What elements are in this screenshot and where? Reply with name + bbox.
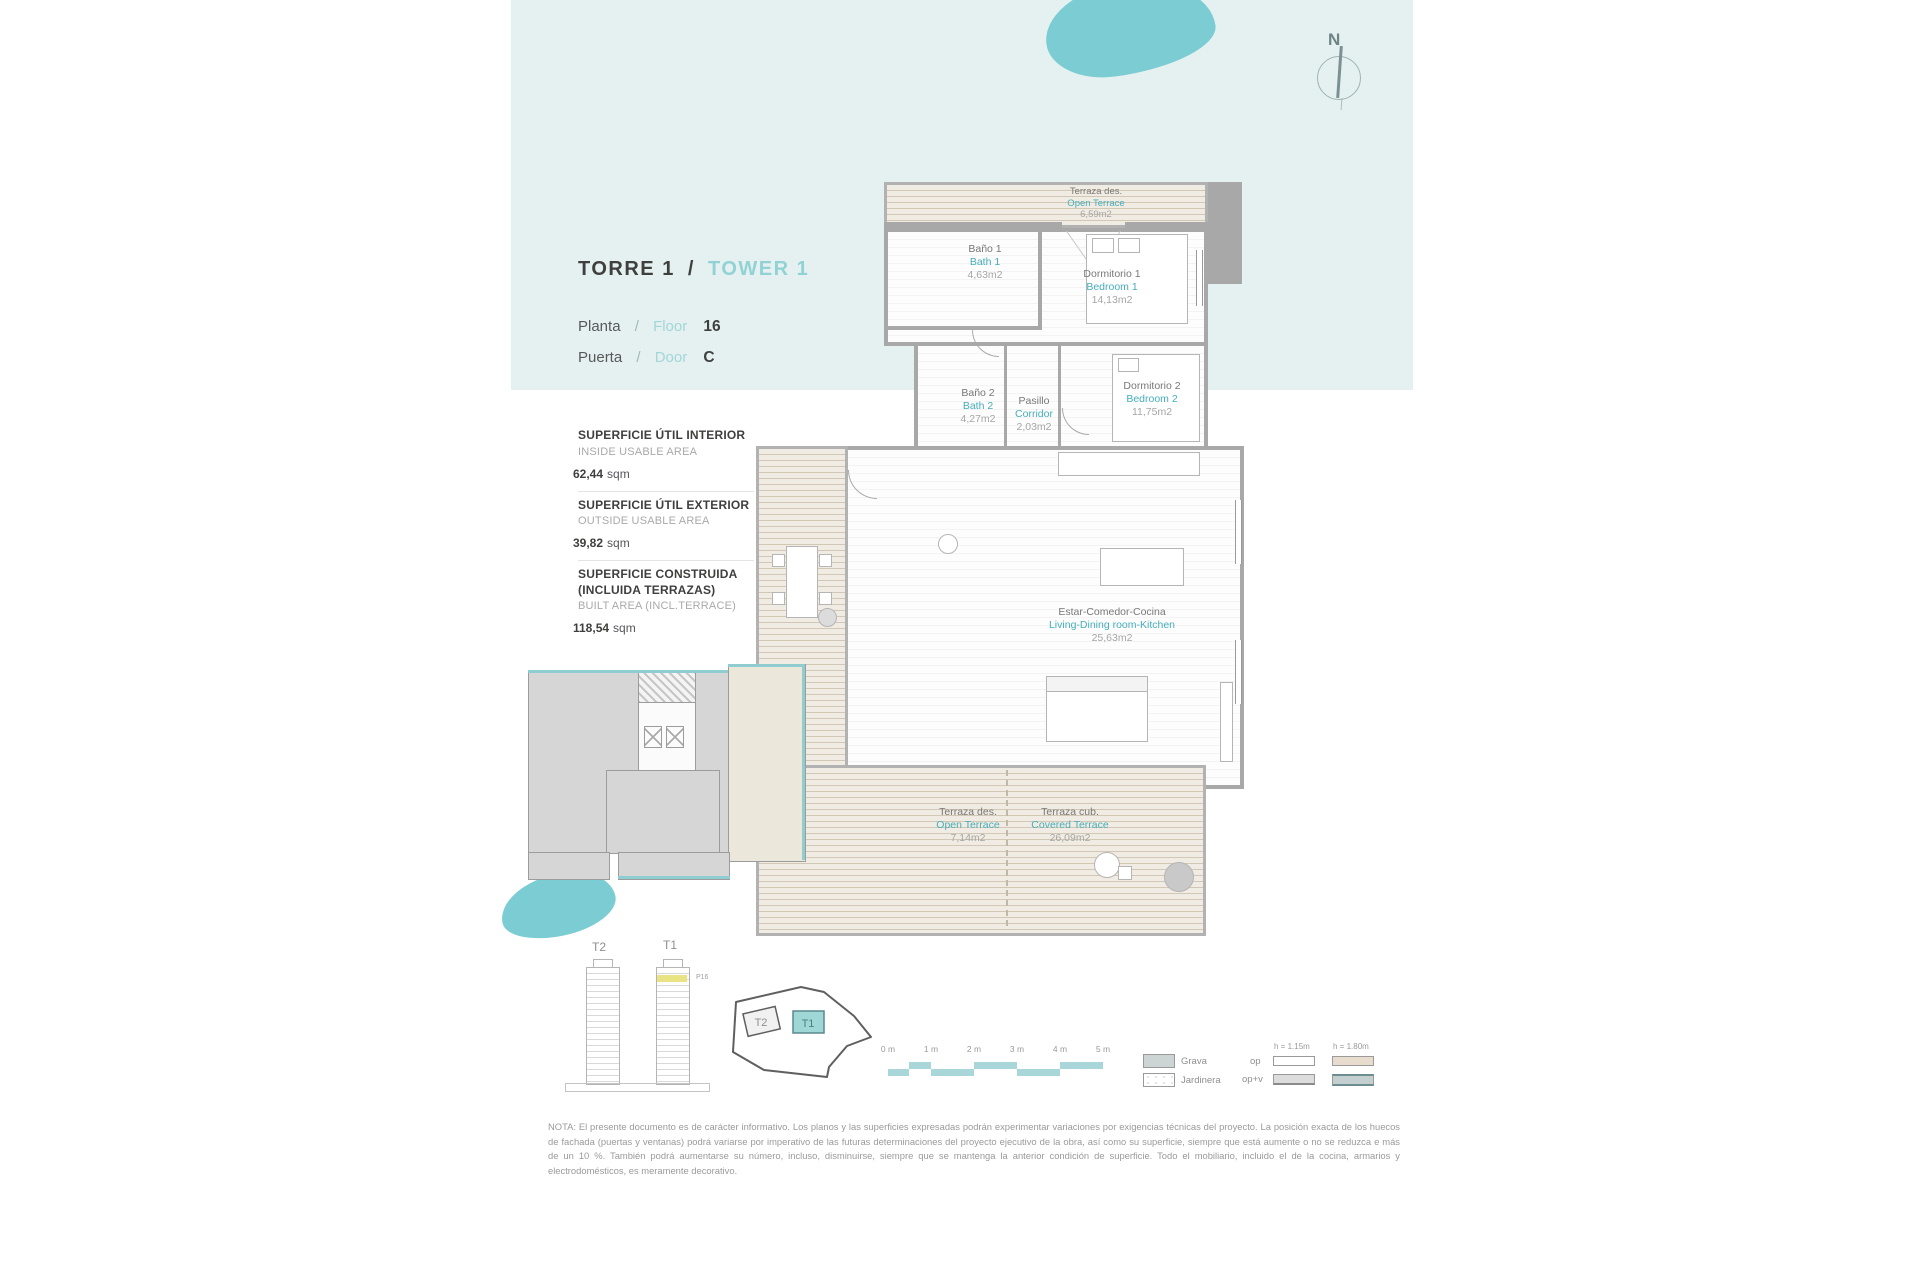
- room-area: 14,13m2: [1092, 294, 1133, 307]
- furniture-pillow: [1092, 238, 1114, 253]
- room-name-es: Baño 2: [961, 387, 994, 400]
- area-value: 62,44sqm: [573, 467, 754, 481]
- furniture-pillow: [1118, 238, 1140, 253]
- tower-name-es: TORRE 1: [578, 258, 675, 280]
- surface-areas: SUPERFICIE ÚTIL INTERIOR INSIDE USABLE A…: [578, 422, 754, 645]
- room-label-bedroom2: Dormitorio 2 Bedroom 2 11,75m2: [1123, 380, 1180, 418]
- area-title-en: OUTSIDE USABLE AREA: [578, 515, 754, 527]
- op-swatch-180: [1332, 1056, 1374, 1066]
- door-value: C: [703, 349, 714, 366]
- wall-block-top-right: [1208, 182, 1242, 284]
- area-value: 39,82sqm: [573, 536, 754, 550]
- area-number: 39,82: [573, 536, 603, 550]
- op-swatch-115: [1273, 1056, 1315, 1066]
- room-name-en: Bedroom 2: [1126, 393, 1177, 406]
- keyplan-core-hatch: [638, 672, 696, 704]
- keyplan-highlight: [728, 664, 804, 667]
- room-label-bath2: Baño 2 Bath 2 4,27m2: [960, 387, 995, 425]
- furniture-terrace-table: [1094, 852, 1120, 878]
- living-band: [844, 446, 1244, 789]
- room-name-es: Baño 1: [968, 243, 1001, 256]
- scale-tick-label: 5 m: [1096, 1044, 1110, 1054]
- room-label-bath1: Baño 1 Bath 1 4,63m2: [967, 243, 1002, 281]
- window: [1235, 500, 1242, 564]
- keyplan-elevator: [644, 726, 662, 748]
- room-name-es: Terraza des.: [1070, 186, 1122, 198]
- area-unit: sqm: [613, 621, 636, 635]
- site-t1-label: T1: [802, 1018, 815, 1030]
- room-area: 11,75m2: [1132, 406, 1172, 419]
- keyplan-highlight: [618, 876, 730, 879]
- jardinera-label: Jardinera: [1181, 1075, 1221, 1086]
- window: [1196, 250, 1203, 306]
- room-name-es: Terraza des.: [939, 806, 997, 819]
- disclaimer-note: NOTA: El presente documento es de caráct…: [548, 1120, 1400, 1178]
- area-built: SUPERFICIE CONSTRUIDA (INCLUIDA TERRAZAS…: [578, 561, 754, 645]
- furniture-chair: [772, 592, 785, 605]
- room-area: 7,14m2: [950, 832, 985, 845]
- tower-base-line: [565, 1083, 710, 1092]
- floor-value: 16: [703, 318, 720, 335]
- room-name-es: Estar-Comedor-Cocina: [1058, 606, 1165, 619]
- room-area: 4,27m2: [960, 413, 995, 426]
- furniture-chair: [772, 554, 785, 567]
- door-separator: /: [636, 349, 640, 366]
- keyplan-unit-c: [728, 664, 806, 862]
- site-plan: T2 T1: [722, 978, 882, 1090]
- scale-segment: [909, 1062, 931, 1069]
- highlighted-floor-band: [657, 975, 687, 982]
- room-label-bedroom1: Dormitorio 1 Bedroom 1 14,13m2: [1083, 268, 1140, 306]
- room-name-es: Terraza cub.: [1041, 806, 1099, 819]
- room-area: 4,63m2: [967, 269, 1002, 282]
- furniture-stool: [818, 608, 837, 627]
- furniture-pillow: [1118, 358, 1139, 372]
- area-unit: sqm: [607, 467, 630, 481]
- plant-icon: [938, 534, 958, 554]
- keyplan-elevator: [666, 726, 684, 748]
- wall-under-bath1: [884, 326, 1042, 330]
- wall-corridor-bedroom2: [1058, 342, 1061, 446]
- area-number: 118,54: [573, 621, 609, 635]
- floor-tag: P16: [696, 974, 708, 981]
- legend-height2-label: h = 1.80m: [1333, 1042, 1369, 1051]
- scale-tick-label: 1 m: [924, 1044, 938, 1054]
- tower-name-en: TOWER 1: [708, 258, 809, 280]
- terrace-bottom: [756, 765, 1206, 936]
- op-label: op: [1250, 1056, 1261, 1067]
- tower-t2: [586, 967, 620, 1085]
- room-name-es: Dormitorio 1: [1083, 268, 1140, 281]
- room-name-es: Pasillo: [1019, 395, 1050, 408]
- furniture-planter: [1164, 862, 1194, 892]
- scale-tick-label: 3 m: [1010, 1044, 1024, 1054]
- wall-bath1-bedroom1: [1038, 228, 1042, 328]
- room-label-living: Estar-Comedor-Cocina Living-Dining room-…: [1049, 606, 1175, 644]
- scale-tick-label: 2 m: [967, 1044, 981, 1054]
- keyplan-bottom-unit: [606, 770, 720, 854]
- scale-segment: [931, 1069, 974, 1076]
- area-outside: SUPERFICIE ÚTIL EXTERIOR OUTSIDE USABLE …: [578, 492, 754, 562]
- scale-tick-label: 0 m: [881, 1044, 895, 1054]
- keyplan-highlight: [802, 664, 805, 860]
- tower-t1: [656, 967, 690, 1085]
- area-title-es: SUPERFICIE ÚTIL INTERIOR: [578, 428, 754, 444]
- room-area: 25,63m2: [1092, 632, 1133, 645]
- area-title-en: BUILT AREA (INCL.TERRACE): [578, 600, 754, 612]
- furniture-kitchen-island: [1100, 548, 1184, 586]
- grava-swatch: [1143, 1054, 1175, 1068]
- legend-height1-label: h = 1.15m: [1274, 1042, 1310, 1051]
- room-name-en: Open Terrace: [1067, 198, 1124, 210]
- room-name-en: Covered Terrace: [1031, 819, 1108, 832]
- room-area: 6,59m2: [1080, 209, 1112, 221]
- floor-row: Planta / Floor 16: [578, 318, 721, 336]
- title-separator: /: [688, 258, 695, 280]
- keyplan-terrace-lower-left: [528, 852, 610, 880]
- area-value: 118,54sqm: [573, 621, 754, 635]
- scale-segment: [888, 1069, 909, 1076]
- room-name-es: Dormitorio 2: [1123, 380, 1180, 393]
- keyplan-highlight: [528, 670, 728, 673]
- door-label-es: Puerta: [578, 349, 622, 366]
- opv-swatch-115: [1273, 1074, 1315, 1085]
- furniture-tv-unit: [1220, 682, 1233, 762]
- page-title: TORRE 1 / TOWER 1: [578, 258, 809, 281]
- floor-label-es: Planta: [578, 318, 621, 335]
- terrace-divider-dashed: [1006, 770, 1008, 926]
- room-name-en: Open Terrace: [936, 819, 999, 832]
- floor-label-en: Floor: [653, 318, 687, 335]
- scale-segment: [974, 1062, 1017, 1069]
- wall-terrace-left: [884, 222, 1062, 231]
- area-number: 62,44: [573, 467, 603, 481]
- tower-t2-label: T2: [592, 940, 606, 954]
- scale-segment: [1017, 1069, 1060, 1076]
- furniture-chair: [819, 592, 832, 605]
- opv-label: op+v: [1242, 1074, 1263, 1085]
- area-title-en: INSIDE USABLE AREA: [578, 446, 754, 458]
- room-label-terrace-open: Terraza des. Open Terrace 7,14m2: [936, 806, 999, 844]
- door-label-en: Door: [655, 349, 688, 366]
- window: [1235, 640, 1242, 704]
- furniture-chair: [819, 554, 832, 567]
- grava-label: Grava: [1181, 1056, 1207, 1067]
- furniture-chair: [1118, 866, 1132, 880]
- furniture-dining-table: [786, 546, 818, 618]
- room-name-en: Bath 2: [963, 400, 993, 413]
- floor-separator: /: [635, 318, 639, 335]
- room-label-terrace-covered: Terraza cub. Covered Terrace 26,09m2: [1031, 806, 1108, 844]
- area-title-es: SUPERFICIE ÚTIL EXTERIOR: [578, 498, 754, 514]
- room-label-corridor: Pasillo Corridor 2,03m2: [1015, 395, 1053, 433]
- room-name-en: Corridor: [1015, 408, 1053, 421]
- room-name-en: Bath 1: [970, 256, 1000, 269]
- door-row: Puerta / Door C: [578, 349, 715, 367]
- room-name-en: Bedroom 1: [1086, 281, 1137, 294]
- area-inside: SUPERFICIE ÚTIL INTERIOR INSIDE USABLE A…: [578, 422, 754, 492]
- wall-bath2-corridor: [1004, 342, 1007, 446]
- room-name-en: Living-Dining room-Kitchen: [1049, 619, 1175, 632]
- room-area: 26,09m2: [1050, 832, 1091, 845]
- jardinera-swatch: [1143, 1073, 1175, 1087]
- scale-tick-label: 4 m: [1053, 1044, 1067, 1054]
- tower-t1-label: T1: [663, 938, 677, 952]
- furniture-kitchen-counter: [1058, 452, 1200, 476]
- opv-swatch-180: [1332, 1074, 1374, 1086]
- site-t2-label: T2: [755, 1017, 768, 1029]
- room-label-terrace-top: Terraza des. Open Terrace 6,59m2: [1067, 186, 1124, 221]
- scale-segment: [1060, 1062, 1103, 1069]
- furniture-sofa-back: [1046, 676, 1148, 692]
- area-unit: sqm: [607, 536, 630, 550]
- mini-key-plan: [528, 664, 806, 882]
- area-title-es: SUPERFICIE CONSTRUIDA (INCLUIDA TERRAZAS…: [578, 567, 754, 598]
- wall-terrace-right: [1125, 222, 1208, 231]
- room-area: 2,03m2: [1016, 421, 1051, 434]
